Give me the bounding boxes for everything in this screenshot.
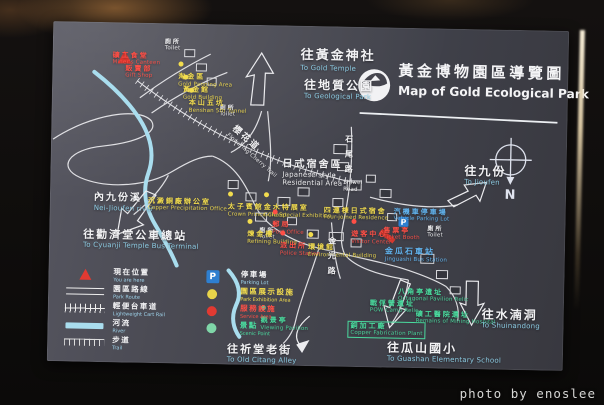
map-signboard: P N 黃金博物園區導覽圖 Map of Gold Ecological Par… bbox=[47, 21, 569, 371]
map-label-jinguashi-bus-station: 金瓜石車站Jinguashi Bus Station bbox=[385, 246, 448, 263]
label-en: Benshan 5th Tunnel bbox=[189, 107, 247, 115]
legend-row: 園區路線Park Route bbox=[64, 284, 166, 299]
map-label-benshan-5th-tunnel: 本山五坑Benshan 5th Tunnel bbox=[189, 80, 248, 115]
legend-row: 輕便台車道Lightweight Cart Rail bbox=[64, 301, 166, 316]
label-en: Shiwei Road bbox=[343, 180, 362, 194]
map-label-to-guashan-elementary: 往瓜山國小To Guashan Elementary School bbox=[387, 341, 502, 366]
legend-label: 現在位置You are here bbox=[113, 266, 149, 284]
label-en: Nei-Jioufen river bbox=[94, 204, 154, 214]
facility-dot-icon bbox=[191, 288, 233, 299]
map-label-gift-shop: 販賣部Gift Shop bbox=[125, 64, 152, 80]
map-label-pow-camp-relic: 戰俘營遺址POW Camp Relic bbox=[370, 299, 419, 315]
map-label-vehicle-parking-lot: 汽機車停車場Vehicle Parking Lot bbox=[394, 208, 450, 224]
red-facility-dot-icon bbox=[273, 209, 278, 214]
label-en: Jinguashi Bus Station bbox=[385, 256, 447, 264]
legend-label: 服務設施Service Area bbox=[240, 303, 276, 321]
legend-left-column: 現在位置You are here園區路線Park Route輕便台車道Light… bbox=[63, 267, 166, 350]
map-label-to-geological-park: 往地質公園To Geological Park bbox=[304, 78, 374, 102]
label-en: Toilet bbox=[427, 232, 443, 239]
yellow-facility-dot-icon bbox=[228, 191, 233, 196]
legend-row: 服務設施Service Area bbox=[191, 304, 294, 319]
facility-dot-icon bbox=[191, 322, 233, 333]
photograph-frame: P N 黃金博物園區導覽圖 Map of Gold Ecological Par… bbox=[0, 0, 604, 405]
route-symbol-icon bbox=[64, 287, 106, 295]
map-legend: 現在位置You are here園區路線Park Route輕便台車道Light… bbox=[63, 267, 364, 354]
label-cn: 往九份 bbox=[464, 164, 506, 179]
trail-symbol-icon bbox=[63, 338, 105, 346]
label-en: Toilet bbox=[165, 45, 181, 52]
map-label-toilet-3: 廁所Toilet bbox=[427, 225, 443, 239]
legend-row: 園區展示設施Park Exhibition Area bbox=[191, 287, 294, 302]
map-label-nei-jioufen-river: 內九份溪Nei-Jioufen river bbox=[94, 192, 155, 214]
legend-label: 園區路線Park Route bbox=[113, 283, 149, 301]
photographer-watermark: photo by enoslee bbox=[460, 386, 596, 401]
parking-icon: P bbox=[192, 270, 234, 284]
yellow-facility-dot-icon bbox=[189, 88, 194, 93]
sign-title-cn: 黃金博物園區導覽圖 bbox=[398, 60, 564, 84]
legend-label: 景點Scenic Point bbox=[240, 320, 271, 338]
triangle-symbol-icon bbox=[64, 268, 106, 280]
wall-edge-highlight bbox=[574, 30, 585, 310]
legend-row: 景點Scenic Point bbox=[191, 321, 294, 336]
map-label-to-gold-temple: 往黃金神社To Gold Temple bbox=[300, 48, 375, 73]
label-en: Environmental Building bbox=[308, 252, 377, 260]
map-label-copper-precipitation-office: 沉澱銅廠辦公室Copper Precipitation Office bbox=[148, 197, 228, 214]
map-label-shiwei-road: 石尾路Shiwei Road bbox=[343, 135, 363, 194]
label-cn: 日式宿舍區 bbox=[282, 159, 342, 172]
legend-row: 步道Trail bbox=[63, 335, 165, 350]
legend-row: P停車場Parking Lot bbox=[192, 270, 295, 285]
map-label-to-cyuanji-bus-terminal: 往勸濟堂公車總站To Cyuanji Temple Bus Terminal bbox=[83, 228, 199, 252]
label-en: Ticket Booth bbox=[383, 235, 420, 242]
legend-row: 現在位置You are here bbox=[64, 267, 166, 282]
label-en: Vehicle Parking Lot bbox=[394, 216, 450, 224]
label-en: To Shuinandong bbox=[481, 322, 540, 332]
red-facility-dot-icon bbox=[280, 230, 285, 235]
map-label-toilet-1: 廁所Toilet bbox=[165, 38, 181, 52]
label-cn: 內九份溪 bbox=[94, 192, 154, 205]
yellow-facility-dot-icon bbox=[247, 219, 252, 224]
title-underline bbox=[359, 113, 557, 123]
legend-label: 河流River bbox=[112, 317, 130, 334]
legend-label: 輕便台車道Lightweight Cart Rail bbox=[113, 300, 166, 318]
map-label-ticket-booth: 售票亭Ticket Booth bbox=[383, 226, 420, 242]
legend-right-column: P停車場Parking Lot園區展示設施Park Exhibition Are… bbox=[190, 270, 295, 353]
legend-label: 步道Trail bbox=[112, 334, 130, 351]
red-facility-dot-icon bbox=[351, 219, 356, 224]
legend-row: 河流River bbox=[63, 318, 165, 333]
legend-label: 停車場Parking Lot bbox=[241, 269, 269, 287]
svg-text:N: N bbox=[504, 188, 515, 203]
yellow-facility-dot-icon bbox=[308, 232, 313, 237]
label-en: POW Camp Relic bbox=[370, 308, 419, 316]
river-symbol-icon bbox=[63, 322, 105, 329]
label-en: To Jioufen bbox=[464, 178, 506, 187]
label-en: Gift Shop bbox=[125, 73, 152, 80]
yellow-facility-dot-icon bbox=[183, 75, 188, 80]
sign-title-block: 黃金博物園區導覽圖 Map of Gold Ecological Park bbox=[356, 59, 565, 101]
label-en: To Geological Park bbox=[304, 92, 374, 102]
yellow-facility-dot-icon bbox=[264, 192, 269, 197]
facility-dot-icon bbox=[191, 305, 233, 316]
map-label-to-jioufen: 往九份To Jioufen bbox=[464, 164, 506, 188]
label-en: To Old Citang Alley bbox=[227, 356, 297, 366]
legend-label: 園區展示設施Park Exhibition Area bbox=[240, 286, 294, 304]
label-cn: 石尾路 bbox=[343, 135, 353, 180]
label-en: To Gold Temple bbox=[300, 63, 375, 73]
map-label-to-shuinandong: 往水湳洞To Shuinandong bbox=[481, 307, 540, 331]
rail-symbol-icon bbox=[64, 303, 106, 313]
label-cn: 往黃金神社 bbox=[301, 48, 376, 65]
